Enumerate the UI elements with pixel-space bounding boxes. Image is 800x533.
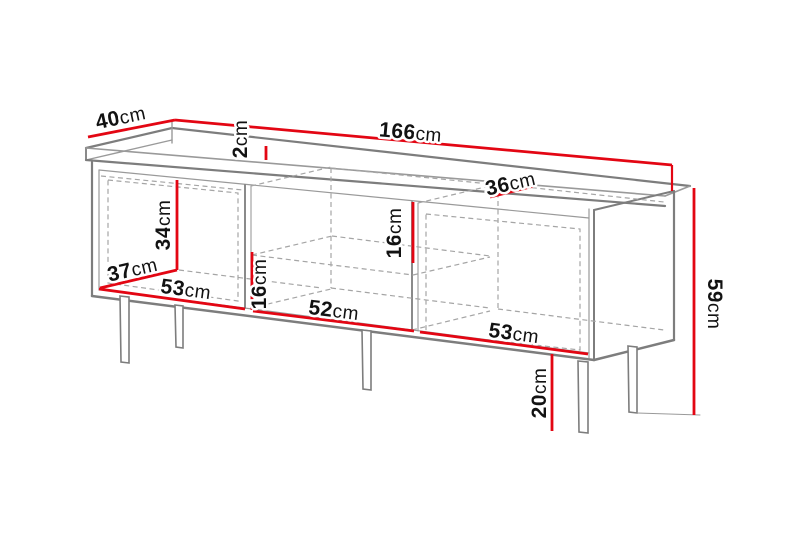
dim-label-top-thickness: 2cm bbox=[229, 120, 252, 159]
dim-label-top-width: 166cm bbox=[378, 118, 443, 146]
shelf-left-depth-edge bbox=[252, 236, 332, 255]
shelf-back-edge bbox=[332, 236, 490, 256]
dim-label-top-depth: 40cm bbox=[93, 101, 147, 134]
leg-front-left bbox=[120, 296, 129, 363]
leg-front-right bbox=[578, 361, 588, 433]
diagram-svg: 40cm 166cm 2cm 36cm 34cm 37cm 53cm 16cm … bbox=[0, 0, 800, 533]
dim-label-left-width: 53cm bbox=[159, 275, 212, 304]
shelf-right-depth-edge bbox=[413, 257, 490, 275]
dim-label-total-height: 59cm bbox=[703, 279, 726, 330]
left-door-top-line bbox=[101, 176, 243, 190]
dim-label-middle-width: 52cm bbox=[307, 296, 360, 325]
leg-front-middle bbox=[362, 330, 371, 390]
leg-back-right bbox=[628, 346, 637, 413]
dim-label-right-width: 53cm bbox=[487, 319, 540, 348]
dim-label-left-height: 34cm bbox=[152, 200, 175, 251]
furniture-dimension-diagram: 40cm 166cm 2cm 36cm 34cm 37cm 53cm 16cm … bbox=[0, 0, 800, 533]
top-panel-right-edge bbox=[665, 186, 690, 196]
legs bbox=[120, 296, 700, 433]
leg-back-left bbox=[175, 305, 183, 348]
dim-label-middle-lower-height: 16cm bbox=[248, 259, 271, 310]
height-extension-line bbox=[637, 413, 700, 415]
dim-label-leg-height: 20cm bbox=[528, 368, 551, 419]
top-panel-left-bottom-edge bbox=[86, 140, 172, 160]
middle-floor-right-depth-edge bbox=[412, 311, 490, 330]
dim-label-middle-upper-height: 16cm bbox=[383, 208, 406, 259]
